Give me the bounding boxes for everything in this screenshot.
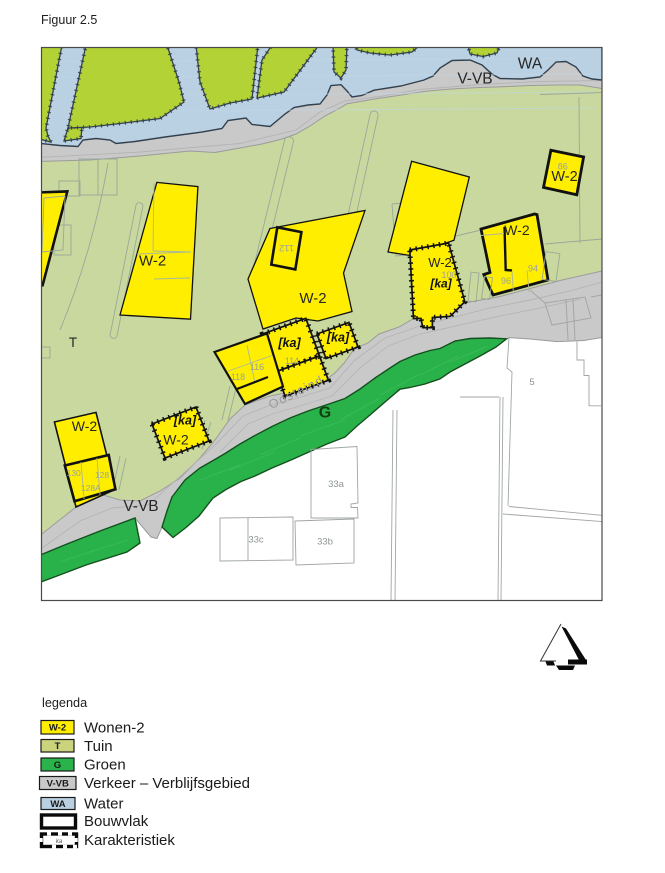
- svg-text:T: T: [55, 741, 61, 752]
- svg-text:100: 100: [441, 270, 456, 280]
- svg-text:128A: 128A: [81, 483, 101, 493]
- svg-text:V-VB: V-VB: [47, 778, 69, 789]
- svg-text:W-2: W-2: [504, 222, 530, 238]
- svg-text:W-2: W-2: [139, 252, 166, 269]
- svg-text:128: 128: [95, 470, 109, 480]
- svg-text:T: T: [69, 335, 77, 350]
- svg-text:V-VB: V-VB: [123, 498, 158, 515]
- svg-text:33b: 33b: [317, 537, 333, 548]
- svg-text:W-2: W-2: [299, 290, 326, 307]
- svg-text:33a: 33a: [328, 479, 345, 490]
- svg-text:5: 5: [529, 377, 534, 388]
- svg-text:Water: Water: [84, 796, 123, 813]
- svg-text:Figuur 2.5: Figuur 2.5: [41, 13, 97, 27]
- svg-text:WA: WA: [518, 56, 543, 73]
- svg-text:96: 96: [501, 276, 511, 286]
- svg-text:Groen: Groen: [84, 757, 126, 774]
- svg-text:W-2: W-2: [49, 723, 66, 734]
- svg-text:Tuin: Tuin: [84, 738, 113, 755]
- svg-text:86: 86: [558, 162, 568, 172]
- svg-text:112: 112: [279, 242, 294, 253]
- svg-text:94: 94: [528, 264, 538, 274]
- svg-text:Wonen-2: Wonen-2: [84, 719, 145, 736]
- svg-text:130: 130: [67, 468, 81, 478]
- svg-text:W-2: W-2: [428, 255, 452, 270]
- svg-text:V-VB: V-VB: [457, 71, 492, 88]
- svg-text:116: 116: [250, 362, 264, 372]
- svg-text:WA: WA: [50, 799, 65, 810]
- svg-text:ka: ka: [56, 839, 63, 845]
- svg-text:[ka]: [ka]: [326, 331, 350, 345]
- svg-text:legenda: legenda: [42, 696, 88, 710]
- svg-text:Verkeer – Verblijfsgebied: Verkeer – Verblijfsgebied: [84, 775, 250, 792]
- svg-text:114: 114: [285, 356, 299, 366]
- svg-text:33c: 33c: [248, 535, 264, 546]
- svg-text:G: G: [54, 760, 61, 771]
- svg-text:Karakteristiek: Karakteristiek: [84, 832, 175, 849]
- svg-text:W-2: W-2: [163, 432, 189, 448]
- svg-text:W-2: W-2: [72, 418, 98, 434]
- svg-text:Bouwvlak: Bouwvlak: [84, 813, 149, 830]
- svg-text:118: 118: [231, 372, 245, 382]
- svg-text:[ka]: [ka]: [173, 414, 197, 428]
- svg-text:G: G: [319, 405, 331, 422]
- svg-text:[ka]: [ka]: [277, 336, 301, 350]
